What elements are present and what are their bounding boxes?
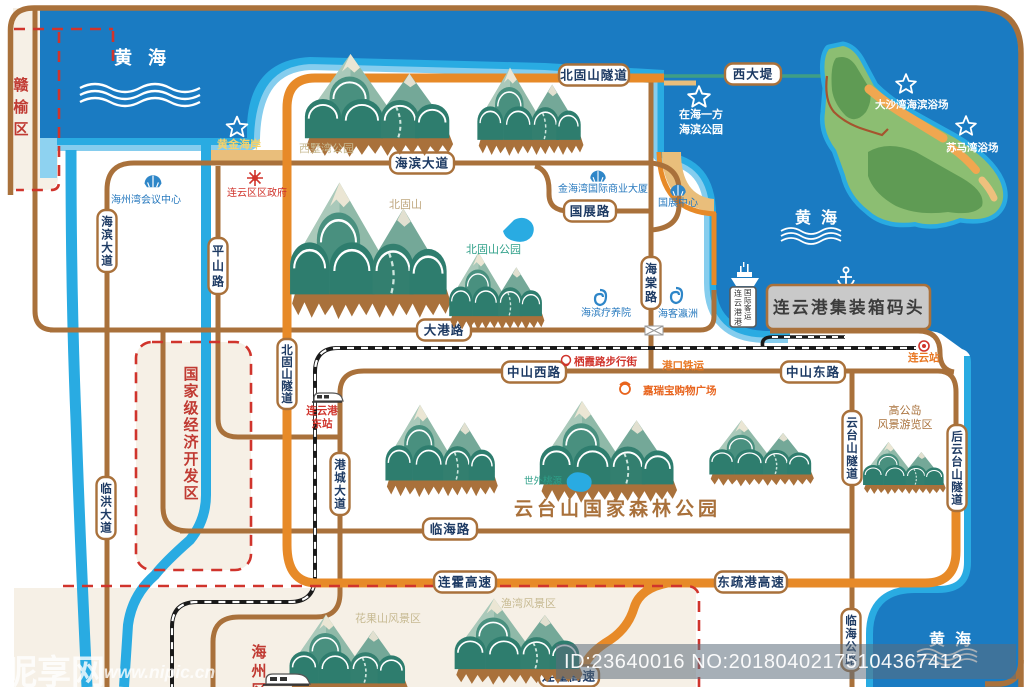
svg-text:连云港: 连云港 — [306, 404, 338, 417]
svg-text:港: 港 — [734, 317, 742, 327]
svg-text:路: 路 — [645, 289, 658, 304]
svg-text:海: 海 — [251, 643, 266, 661]
svg-text:道: 道 — [951, 493, 963, 507]
svg-text:家: 家 — [183, 382, 198, 400]
svg-text:海滨疗养院: 海滨疗养院 — [581, 306, 631, 319]
svg-text:海滨大道: 海滨大道 — [395, 156, 449, 171]
svg-text:滨: 滨 — [101, 228, 113, 242]
svg-text:海: 海 — [101, 215, 113, 229]
svg-text:隧: 隧 — [281, 379, 293, 393]
svg-text:海客瀛洲: 海客瀛洲 — [658, 307, 698, 320]
svg-text:连云区区政府: 连云区区政府 — [227, 186, 287, 199]
svg-text:世外桃源: 世外桃源 — [524, 475, 563, 487]
svg-text:平: 平 — [212, 244, 224, 258]
svg-text:道: 道 — [100, 521, 112, 535]
svg-text:昵享网: 昵享网 — [3, 654, 105, 687]
svg-text:路: 路 — [212, 274, 225, 289]
svg-text:山: 山 — [951, 467, 963, 481]
svg-text:海州湾会议中心: 海州湾会议中心 — [111, 193, 181, 206]
svg-text:开: 开 — [183, 451, 198, 468]
svg-text:花果山风景区: 花果山风景区 — [355, 612, 421, 625]
svg-text:大沙湾海滨浴场: 大沙湾海滨浴场 — [875, 98, 949, 111]
svg-text:中山西路: 中山西路 — [507, 365, 561, 380]
svg-text:后: 后 — [951, 429, 963, 443]
svg-text:黄金海岸: 黄金海岸 — [217, 137, 261, 151]
svg-text:东疏港高速: 东疏港高速 — [717, 575, 785, 590]
svg-text:城: 城 — [334, 471, 346, 485]
svg-text:海滨公园: 海滨公园 — [679, 122, 723, 136]
svg-text:临: 临 — [100, 482, 112, 496]
svg-text:级: 级 — [183, 399, 199, 417]
svg-text:港口铁运: 港口铁运 — [662, 359, 704, 372]
svg-text:区: 区 — [13, 121, 28, 138]
svg-text:云: 云 — [734, 299, 742, 308]
svg-text:赣: 赣 — [13, 76, 29, 94]
svg-text:连霍高速: 连霍高速 — [438, 575, 492, 590]
svg-text:国展中心: 国展中心 — [658, 196, 698, 209]
svg-text:隧: 隧 — [951, 480, 963, 494]
svg-text:云台山国家森林公园: 云台山国家森林公园 — [514, 497, 721, 520]
svg-text:风景游览区: 风景游览区 — [878, 417, 933, 431]
svg-text:运: 运 — [744, 311, 752, 320]
svg-text:东站: 东站 — [312, 417, 333, 430]
svg-text:国展路: 国展路 — [570, 204, 611, 219]
svg-text:大: 大 — [101, 241, 113, 255]
svg-text:大港路: 大港路 — [424, 323, 465, 338]
svg-text:云: 云 — [846, 416, 858, 429]
svg-text:海: 海 — [645, 261, 657, 276]
svg-text:渔湾风景区: 渔湾风景区 — [501, 596, 556, 610]
svg-text:黄海: 黄海 — [795, 208, 847, 227]
svg-text:北固山: 北固山 — [389, 198, 422, 211]
svg-text:棠: 棠 — [644, 275, 658, 290]
svg-text:隧: 隧 — [846, 454, 858, 468]
svg-text:北固山公园: 北固山公园 — [466, 243, 521, 256]
svg-text:海: 海 — [845, 627, 857, 641]
svg-text:道: 道 — [101, 254, 113, 268]
svg-text:临: 临 — [845, 614, 857, 628]
svg-text:州: 州 — [250, 663, 266, 680]
svg-text:道: 道 — [281, 391, 293, 405]
svg-text:北: 北 — [281, 343, 293, 357]
svg-text:ID:23640016 NO:201804021751043: ID:23640016 NO:20180402175104367412 — [564, 651, 963, 673]
svg-text:台: 台 — [846, 428, 858, 442]
svg-text:济: 济 — [183, 433, 199, 451]
svg-text:北固山隧道: 北固山隧道 — [560, 68, 628, 83]
svg-text:国: 国 — [183, 366, 198, 383]
svg-text:道: 道 — [846, 467, 858, 481]
svg-text:临海路: 临海路 — [430, 522, 471, 537]
svg-text:榆: 榆 — [13, 98, 29, 116]
svg-text:大: 大 — [334, 484, 346, 498]
svg-text:区: 区 — [183, 485, 198, 502]
svg-text:黄海: 黄海 — [114, 47, 182, 68]
svg-text:山: 山 — [281, 367, 293, 381]
svg-text:港: 港 — [734, 307, 742, 317]
svg-text:洪: 洪 — [100, 495, 112, 509]
svg-text:金海湾国际商业大厦: 金海湾国际商业大厦 — [558, 182, 648, 195]
svg-text:港: 港 — [334, 458, 346, 472]
svg-text:www.nipic.cn: www.nipic.cn — [104, 662, 215, 682]
svg-text:中山东路: 中山东路 — [786, 365, 840, 380]
svg-text:山: 山 — [212, 258, 224, 273]
svg-text:连云站: 连云站 — [908, 351, 940, 364]
svg-text:山: 山 — [846, 441, 858, 455]
svg-text:连: 连 — [734, 288, 742, 298]
svg-text:苏马湾浴场: 苏马湾浴场 — [946, 141, 999, 154]
svg-text:发: 发 — [182, 467, 199, 485]
svg-text:大: 大 — [100, 508, 112, 522]
svg-text:高公岛: 高公岛 — [889, 403, 922, 417]
svg-text:栖霞路步行街: 栖霞路步行街 — [574, 355, 637, 368]
svg-text:台: 台 — [951, 455, 963, 469]
svg-text:道: 道 — [334, 497, 346, 511]
svg-text:连云港集装箱码头: 连云港集装箱码头 — [773, 297, 925, 317]
svg-text:云: 云 — [951, 443, 963, 456]
svg-text:在海一方: 在海一方 — [679, 107, 723, 121]
svg-text:经: 经 — [183, 416, 198, 434]
svg-text:固: 固 — [281, 355, 293, 369]
svg-text:嘉瑞宝购物广场: 嘉瑞宝购物广场 — [642, 384, 717, 397]
svg-text:西墅湾公园: 西墅湾公园 — [299, 141, 354, 155]
svg-text:西大堤: 西大堤 — [733, 67, 774, 82]
